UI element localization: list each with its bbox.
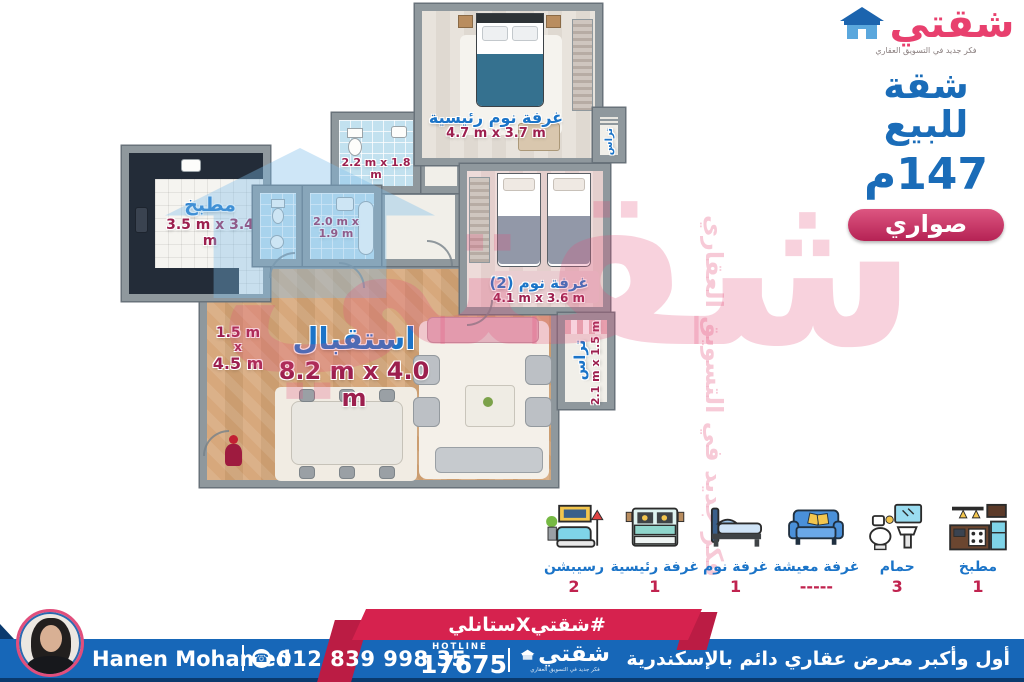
divider [242, 645, 244, 671]
gray-sofa [435, 447, 543, 473]
footer-brand-logo: شقتي فكر جديد في التسويق العقاري [520, 643, 610, 673]
legend-item-bathroom: حمام 3 [859, 503, 935, 596]
reception-label: استقبال 8.2 m x 4.0 m [269, 323, 439, 413]
single-bed [497, 173, 541, 267]
legend-count: 2 [568, 577, 579, 596]
blanket [548, 216, 590, 264]
bedroom-2-name: غرفة نوم (2) [479, 275, 599, 292]
terrace-name: تراس [571, 339, 589, 380]
pillow [553, 178, 585, 191]
single-bed [547, 173, 591, 267]
legend-label: رسيبشن [544, 559, 604, 575]
legend-label: غرفة نوم [703, 559, 768, 575]
terrace-label: تراس 2.1 m x 1.5 m [570, 320, 602, 404]
nightstand [546, 15, 561, 28]
shaft-label: تراس [604, 128, 615, 155]
blanket [498, 216, 540, 264]
legend-item-bedroom: غرفة نوم 1 [698, 503, 774, 596]
agent-avatar [16, 609, 84, 677]
hashtag-ribbon: #شقتيXستانلي [352, 609, 702, 640]
hallway-width: 1.5 m [209, 325, 267, 341]
blanket [477, 54, 543, 106]
footer-logo-text: شقتي [538, 643, 610, 666]
legend-item-kitchen: مطبخ 1 [940, 503, 1016, 596]
armchair [525, 397, 552, 427]
ribbon-fold [0, 624, 14, 639]
legend-label: حمام [880, 559, 915, 575]
brand-logo: شقتي [836, 4, 1016, 44]
footer-bottom-strip [0, 678, 1024, 682]
single-bed-icon [706, 503, 766, 555]
hallway-label: 1.5 m x 4.5 m [209, 325, 267, 373]
avatar-face [40, 625, 62, 652]
kitchen-stove [135, 207, 148, 233]
listing-info-panel: شقتي فكر جديد في التسويق العقاري شقة للب… [836, 4, 1016, 241]
sofa-icon [786, 503, 846, 555]
reception-dims: 8.2 m x 4.0 m [269, 358, 439, 413]
house-icon [520, 645, 535, 665]
listing-title: شقة للبيع [836, 67, 1016, 145]
legend-label: غرفة رئيسية [611, 559, 699, 575]
legend-item-living-room: غرفة معيشة ----- [778, 503, 854, 596]
kitchen-icon [948, 503, 1008, 555]
legend-item-master-room: غرفة رئيسية 1 [617, 503, 693, 596]
hotline-number: 17675 [420, 652, 500, 677]
legend-count: 1 [730, 577, 741, 596]
pillow [482, 26, 508, 41]
master-bed-icon [625, 503, 685, 555]
toilet-tank [347, 128, 363, 138]
louver [600, 115, 618, 125]
room-shaft: تراس [593, 108, 625, 162]
wardrobe [469, 177, 490, 263]
bedroom-2-label: غرفة نوم (2) 4.1 m x 3.6 m [479, 275, 599, 306]
pillow [512, 26, 538, 41]
pink-sofa [427, 317, 539, 343]
room-master-bedroom: غرفة نوم رئيسية 4.7 m x 3.7 m [415, 4, 602, 165]
floor-plan: استقبال 8.2 m x 4.0 m 1.5 m x 4.5 m مطبخ… [115, 0, 693, 497]
area-label: 147م [836, 153, 1016, 197]
legend-label: غرفة معيشة [773, 559, 859, 575]
reception-name: استقبال [269, 323, 439, 358]
double-bed [476, 13, 544, 107]
phone-icon: ☎ [252, 649, 271, 668]
legend-item-reception: رسيبشن 2 [536, 503, 612, 596]
kitchen-sink [181, 159, 201, 172]
legend-label: مطبخ [959, 559, 997, 575]
hallway-length: 4.5 m [209, 355, 267, 373]
master-bedroom-label: غرفة نوم رئيسية 4.7 m x 3.7 m [428, 109, 564, 142]
legend-count: 1 [972, 577, 983, 596]
hallway-x: x [209, 341, 267, 355]
hotline-block: HOTLINE 17675 [420, 642, 500, 677]
reception-icon [544, 503, 604, 555]
nightstand [458, 15, 473, 28]
legend-count: ----- [800, 577, 833, 596]
divider [508, 648, 510, 672]
flyer-canvas: استقبال 8.2 m x 4.0 m 1.5 m x 4.5 m مطبخ… [0, 0, 1024, 682]
master-bedroom-name: غرفة نوم رئيسية [428, 109, 564, 127]
footer-logo-tagline: فكر جديد في التسويق العقاري [520, 667, 610, 673]
chair [379, 466, 395, 479]
hashtag-text: #شقتيXستانلي [448, 614, 606, 636]
toilet [348, 138, 362, 156]
legend-count: 1 [649, 577, 660, 596]
person-figure-head [229, 435, 238, 444]
chair [299, 466, 315, 479]
rooms-legend: رسيبشن 2 غرفة رئيسية 1 غرفة [536, 503, 1016, 596]
room-bedroom-2: غرفة نوم (2) 4.1 m x 3.6 m [460, 164, 610, 314]
master-bedroom-dims: 4.7 m x 3.7 m [428, 127, 564, 142]
headboard [477, 14, 543, 23]
table-plant [483, 397, 493, 407]
room-terrace: تراس 2.1 m x 1.5 m [558, 313, 614, 409]
chair [339, 466, 355, 479]
brand-logo-text: شقتي [890, 4, 1015, 44]
avatar-body [27, 656, 75, 677]
wardrobe [572, 19, 593, 111]
terrace-dims: 2.1 m x 1.5 m [589, 320, 602, 404]
legend-count: 3 [892, 577, 903, 596]
bedroom-2-dims: 4.1 m x 3.6 m [479, 292, 599, 306]
house-icon [838, 5, 886, 43]
location-badge: صواري [848, 209, 1004, 241]
footer-slogan: أول وأكبر معرض عقاري دائم بالإسكندرية [626, 648, 1010, 670]
sink [391, 126, 407, 138]
bathroom-icon [867, 503, 927, 555]
pillow [503, 178, 535, 191]
brand-tagline: فكر جديد في التسويق العقاري [836, 46, 1016, 55]
armchair [525, 355, 552, 385]
